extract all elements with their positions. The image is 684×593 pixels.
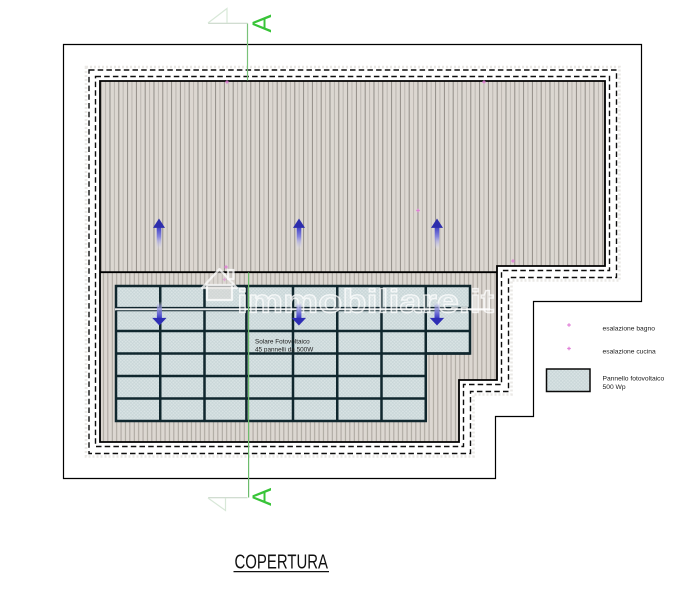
svg-text:immobiliare.it: immobiliare.it — [237, 284, 494, 321]
svg-text:esalazione cucina: esalazione cucina — [603, 349, 656, 356]
svg-text:Solare Fotovoltaico: Solare Fotovoltaico — [255, 339, 310, 346]
svg-text:45 pannelli da 500W: 45 pannelli da 500W — [255, 347, 314, 354]
svg-text:500 Wp: 500 Wp — [603, 384, 626, 391]
svg-text:A: A — [247, 488, 277, 506]
svg-text:COPERTURA: COPERTURA — [235, 552, 329, 574]
svg-text:Pannello fotovoltaico: Pannello fotovoltaico — [603, 376, 665, 383]
svg-text:A: A — [247, 14, 277, 32]
svg-text:esalazione bagno: esalazione bagno — [603, 326, 656, 333]
